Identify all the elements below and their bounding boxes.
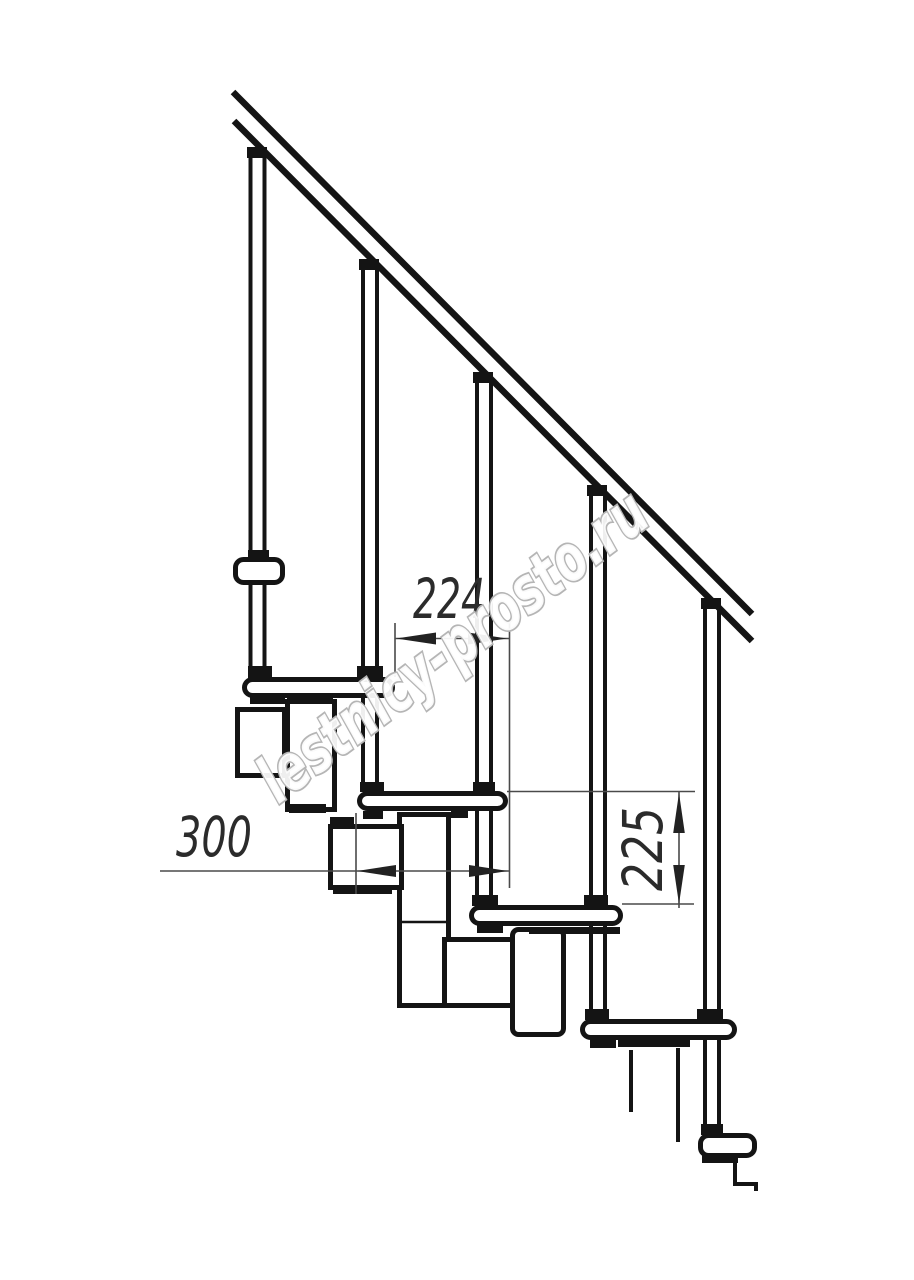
module-tube-3 (513, 930, 564, 1035)
tread-4-clamp (618, 1040, 690, 1047)
tread-2-clamp (451, 811, 468, 818)
baluster-1-foot (248, 666, 272, 678)
module-tube-2 (400, 815, 449, 1006)
baluster-5-collar (697, 1009, 723, 1019)
tread-3-clamp (477, 925, 503, 933)
dimension-depth-label: 300 (176, 805, 252, 869)
arrowhead-right (469, 865, 508, 877)
baluster-1-bracket (236, 560, 283, 583)
baluster-3-foot (472, 895, 498, 906)
lower-step-outline (713, 1161, 756, 1191)
baluster-5 (701, 598, 721, 1133)
bracket-cap (248, 550, 269, 559)
dimension-rise-225: 225 (507, 792, 695, 909)
tread-2 (360, 794, 506, 809)
drawing-canvas: 224 300 225 lestnicy-prosto.ru (0, 0, 914, 1280)
module-box-a (331, 827, 402, 888)
module-box-b (445, 940, 517, 1006)
module-clamp (333, 886, 392, 894)
baluster-5-bracket (701, 1136, 755, 1156)
baluster-1 (247, 147, 267, 677)
tread-3-clamp (529, 927, 620, 934)
tread-2-clamp (363, 811, 383, 819)
tread-4 (583, 1022, 735, 1038)
baluster-4-foot (585, 1009, 609, 1020)
baluster-2-foot (360, 782, 384, 792)
staircase-technical-drawing: 224 300 225 lestnicy-prosto.ru (0, 0, 914, 1280)
baluster-5-foot (701, 1124, 723, 1135)
tread-4-clamp (590, 1039, 616, 1048)
dimension-rise-label: 225 (611, 807, 675, 891)
watermark-text: lestnicy-prosto.ru (243, 476, 663, 818)
baluster-3-collar (473, 782, 495, 792)
baluster-4-collar (584, 895, 608, 906)
tread-1-clamp (250, 695, 285, 704)
bracket-clamp (702, 1155, 738, 1163)
tread-3 (472, 908, 621, 924)
